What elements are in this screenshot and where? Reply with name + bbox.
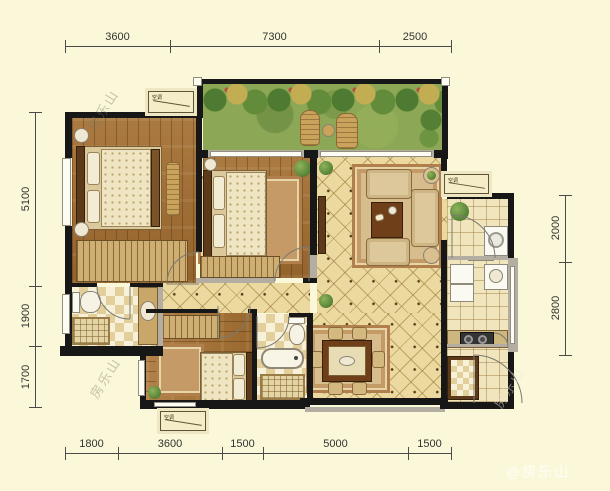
ac-label-line bbox=[153, 100, 190, 107]
watermark-corner: @房乐山 bbox=[506, 462, 570, 482]
floorplan-canvas: 3600 7300 2500 1800 3600 1500 5000 1500 … bbox=[0, 0, 610, 491]
ac-platform-label: 空调 bbox=[444, 174, 489, 194]
ac-label-line bbox=[449, 182, 485, 189]
ac-platform-label: 空调 bbox=[148, 91, 194, 113]
ac-platform-label: 空调 bbox=[160, 411, 206, 431]
door-arcs bbox=[0, 0, 610, 491]
ac-label-line bbox=[165, 419, 202, 426]
